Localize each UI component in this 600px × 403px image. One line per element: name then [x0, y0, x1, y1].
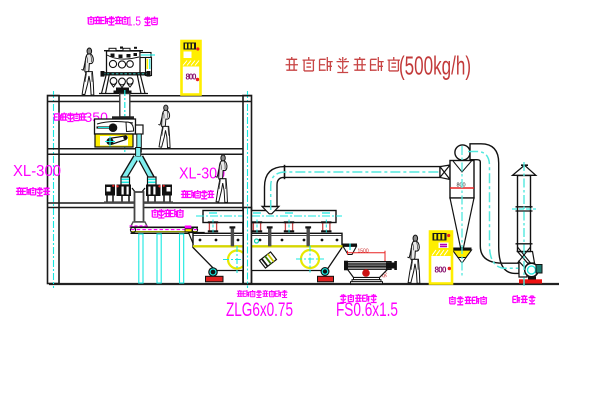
svg-text:1.5: 1.5: [127, 14, 141, 29]
svg-text:(500kg/h): (500kg/h): [399, 51, 471, 81]
svg-text:XL-300: XL-300: [13, 163, 61, 180]
svg-text:1500: 1500: [358, 248, 369, 254]
svg-text:800: 800: [435, 266, 448, 275]
svg-text:FS0.6x1.5: FS0.6x1.5: [336, 300, 398, 321]
svg-text:800: 800: [186, 73, 198, 82]
svg-text:ZLG6x0.75: ZLG6x0.75: [226, 300, 293, 321]
